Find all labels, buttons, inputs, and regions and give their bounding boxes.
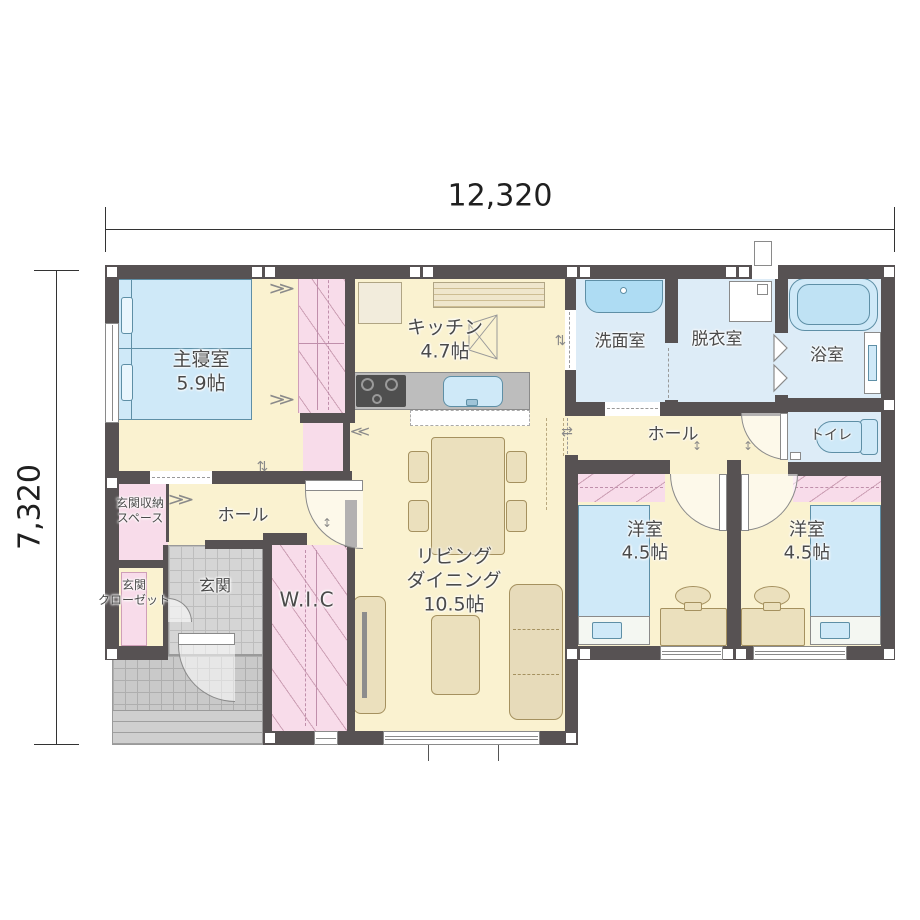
pillar [107,267,117,277]
room-size: 4.5帖 [784,542,831,565]
label-kitchen: キッチン 4.7帖 [407,316,483,364]
room-name: ダイニング [406,569,501,593]
pillar [107,649,117,659]
open-boundary [668,348,669,398]
pillar [736,649,746,659]
swing-arrow-icon: ↕ [743,439,753,453]
room-size: 4.5帖 [622,542,669,565]
washer-detail [757,284,768,295]
dining-table [431,437,505,555]
washroom-hall-sliding-door [605,402,660,416]
dimension-top-line [105,229,895,230]
front-door-leaf [178,633,235,645]
dimension-left-tick-bottom [34,744,79,745]
wall [205,540,263,549]
label-toilet: トイレ [810,427,852,445]
dimension-top-tick-right [894,207,895,252]
wic-line-dashed [305,550,306,726]
desk-right-room [741,608,805,646]
pillar [723,649,733,659]
dimension-left-tick-top [34,270,79,271]
pillar [265,267,275,277]
wall [565,455,578,731]
burner [385,378,398,391]
porch-steps [112,710,263,745]
tv [362,612,367,698]
shelf-chevron-icon: ≫ [269,390,296,410]
wall [788,398,881,412]
dining-chair [506,500,527,532]
closet-right-centerline [795,487,879,488]
dimension-width-label: 12,320 [448,179,553,214]
wall [105,560,168,568]
dimension-height-label: 7,320 [13,464,48,550]
bed-right-pillow [820,622,850,639]
room-name: 玄関収納 [116,496,164,511]
dining-chair [408,451,429,483]
kitchen-cupboard [433,282,545,308]
label-washroom: 洗面室 [595,331,646,352]
label-entrance: 玄関 [199,576,231,596]
counter-ledge [410,410,530,426]
closet-left-centerline [580,487,663,488]
wall [788,462,881,476]
hall-living-door-leaf [305,480,363,491]
pillar [739,267,749,277]
room-name: 主寝室 [172,348,229,372]
room-size: 10.5帖 [406,593,501,617]
bathtub-inner [797,284,870,325]
back-door-leaf [754,241,772,266]
label-western-room-right: 洋室 4.5帖 [784,520,831,565]
wic-floor [272,545,347,731]
toilet-tank [860,419,878,455]
pillar [884,649,894,659]
slide-arrow-icon: ⇄ [552,334,568,346]
slide-arrow-icon: ⇄ [561,424,573,440]
bed-left-pillow [592,622,622,639]
folding-door-icon [773,333,789,395]
wall [263,533,307,545]
toilet-door-leaf [780,413,788,460]
room-name: 洋室 [622,520,669,543]
wall [300,413,350,423]
pillar [410,267,420,277]
wall [578,460,670,474]
coffee-table [431,615,480,695]
pantry-closet [303,423,343,471]
pillar [567,649,577,659]
wall [263,545,272,731]
room-name: キッチン [407,316,483,340]
label-bathroom: 浴室 [810,345,844,366]
dining-chair [408,500,429,532]
swing-arrow-icon: ↕ [322,516,332,530]
sofa-seam [513,629,559,630]
western-right-door-leaf [741,474,749,531]
western-left-door-leaf [719,474,727,531]
tv-board [353,596,386,714]
toilet-paper-holder [790,452,801,460]
pillar [107,478,117,488]
dining-chair [506,451,527,483]
dimension-top-tick-left [105,207,106,252]
label-hall-west: ホール [218,505,269,526]
shelf-chevron-icon: ≪ [350,424,371,440]
label-wic: W.I.C [279,588,334,613]
closet-western-right [793,474,881,502]
vanity-faucet [620,287,627,294]
pillar [580,649,590,659]
pillar [884,400,894,410]
closet-western-left [578,474,665,502]
bedroom-sliding-door [150,471,212,484]
sink-faucet [466,399,478,406]
floor-plan: 12,320 7,320 [0,0,920,920]
pillar [726,267,736,277]
label-hall-east: ホール [648,424,699,445]
wall [345,265,355,423]
chair-stem-left [684,602,702,611]
label-western-room-left: 洋室 4.5帖 [622,520,669,565]
sofa [509,584,563,720]
western-right-window [753,646,847,660]
label-entrance-storage: 玄関収納 スペース [116,496,164,526]
vanity-sink [585,280,663,313]
back-door-gap [752,265,778,279]
chair-stem-right [763,602,781,611]
living-window-tick [428,745,429,761]
wic-window [314,731,338,745]
wall [347,547,355,731]
refrigerator [358,282,402,324]
open-boundary [546,418,547,510]
pillar [580,267,590,277]
bedroom-window [105,323,119,423]
living-window [383,731,540,745]
label-master-bedroom: 主寝室 5.9帖 [172,348,229,396]
room-name: クローゼット [98,593,170,608]
label-dressing-room: 脱衣室 [692,329,743,350]
room-size: 5.9帖 [172,372,229,396]
pillow [121,297,133,334]
wall [727,474,741,646]
closet-divider [299,343,344,344]
pillar [566,733,576,743]
burner [361,378,374,391]
shelf-chevron-icon: ≫ [168,490,195,510]
desk-left-room [660,608,727,646]
room-name: スペース [116,511,164,526]
room-name: 洋室 [784,520,831,543]
label-living-dining: リビング ダイニング 10.5帖 [406,545,501,616]
pillow [121,364,133,401]
bathroom-folding-door [773,333,789,395]
dimension-left-line [56,270,57,745]
pillar [884,267,894,277]
room-name: 玄関 [98,578,170,593]
pillar [567,267,577,277]
shelf-chevron-icon: ≫ [269,279,296,299]
western-left-window [660,646,723,660]
wall [881,265,895,660]
pillar [423,267,433,277]
wic-line [316,550,317,726]
pillar [265,733,275,743]
room-name: リビング [406,545,501,569]
sofa-seam [513,674,559,675]
room-size: 4.7帖 [407,340,483,364]
slide-arrow-icon: ⇄ [254,460,270,472]
living-window-tick [498,745,499,761]
bath-counter-item [868,345,877,381]
wall [665,265,678,343]
pillar [252,267,262,277]
burner [372,394,382,404]
label-entrance-closet: 玄関 クローゼット [98,578,170,608]
